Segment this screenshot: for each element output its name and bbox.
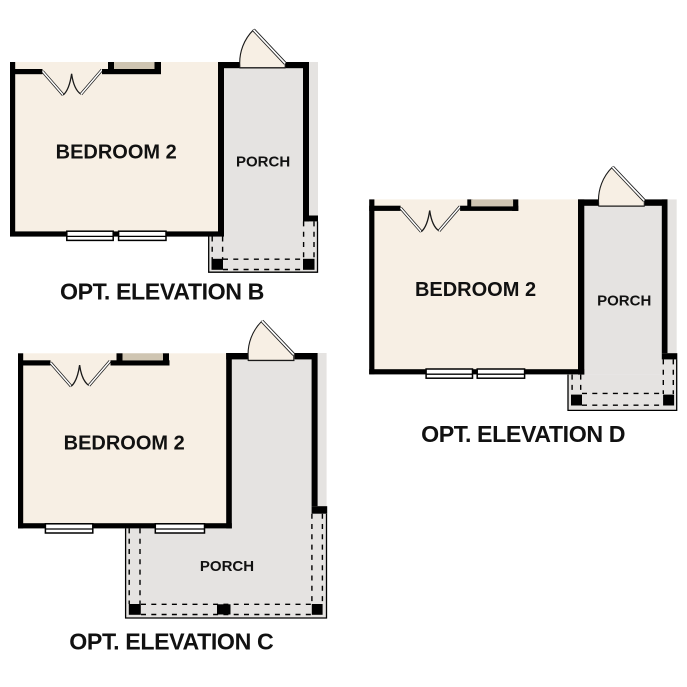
svg-text:BEDROOM 2: BEDROOM 2 [415,279,536,301]
svg-text:BEDROOM 2: BEDROOM 2 [56,141,177,163]
svg-text:OPT. ELEVATION D: OPT. ELEVATION D [421,421,625,447]
svg-text:PORCH: PORCH [200,558,254,575]
svg-text:PORCH: PORCH [236,154,290,171]
svg-text:OPT. ELEVATION B: OPT. ELEVATION B [60,278,264,304]
svg-text:BEDROOM 2: BEDROOM 2 [64,433,185,455]
svg-text:PORCH: PORCH [597,292,651,309]
svg-text:OPT. ELEVATION C: OPT. ELEVATION C [69,629,274,655]
